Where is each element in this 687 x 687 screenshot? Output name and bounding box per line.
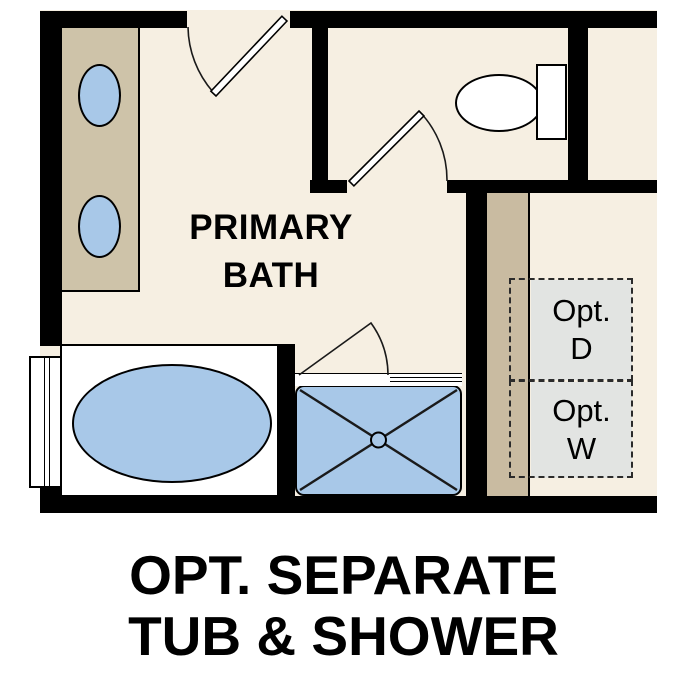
wall-left [40, 11, 62, 346]
room-label-primary-bath: PRIMARY BATH [140, 202, 402, 302]
wall-top-left [40, 11, 187, 28]
opt-d-line1: Opt. [552, 292, 611, 330]
wall-water-closet-left [312, 28, 328, 180]
vanity-sink-top [78, 64, 121, 127]
window [29, 356, 62, 488]
optional-washer-label: Opt. W [531, 382, 632, 478]
optional-dryer-label: Opt. D [531, 280, 632, 380]
vanity-sink-bottom [78, 195, 121, 258]
wall-bottom [40, 496, 657, 513]
opt-w-line1: Opt. [552, 392, 611, 430]
bathtub-basin [72, 364, 272, 483]
wall-door-jamb [310, 180, 347, 193]
toilet-tank [536, 64, 567, 140]
opt-w-line2: W [567, 430, 596, 468]
wall-hall [447, 180, 657, 193]
opt-d-line2: D [570, 330, 592, 368]
caption-line1: OPT. SEPARATE [0, 545, 687, 606]
room-label-line2: BATH [223, 252, 320, 300]
wall-water-closet-right [568, 28, 588, 180]
wall-tub-shower-divider [278, 344, 295, 496]
plan-caption: OPT. SEPARATE TUB & SHOWER [0, 545, 687, 667]
toilet-bowl [455, 74, 543, 132]
shower-glass-panel [390, 377, 462, 382]
caption-line2: TUB & SHOWER [0, 606, 687, 667]
wall-laundry [466, 193, 487, 496]
window-sash [44, 358, 50, 486]
shower-pan [295, 385, 462, 496]
floor-plan-page: Opt. D Opt. W PRIMARY BATH [0, 0, 687, 687]
room-label-line1: PRIMARY [189, 204, 353, 252]
wall-top-right [290, 11, 657, 28]
